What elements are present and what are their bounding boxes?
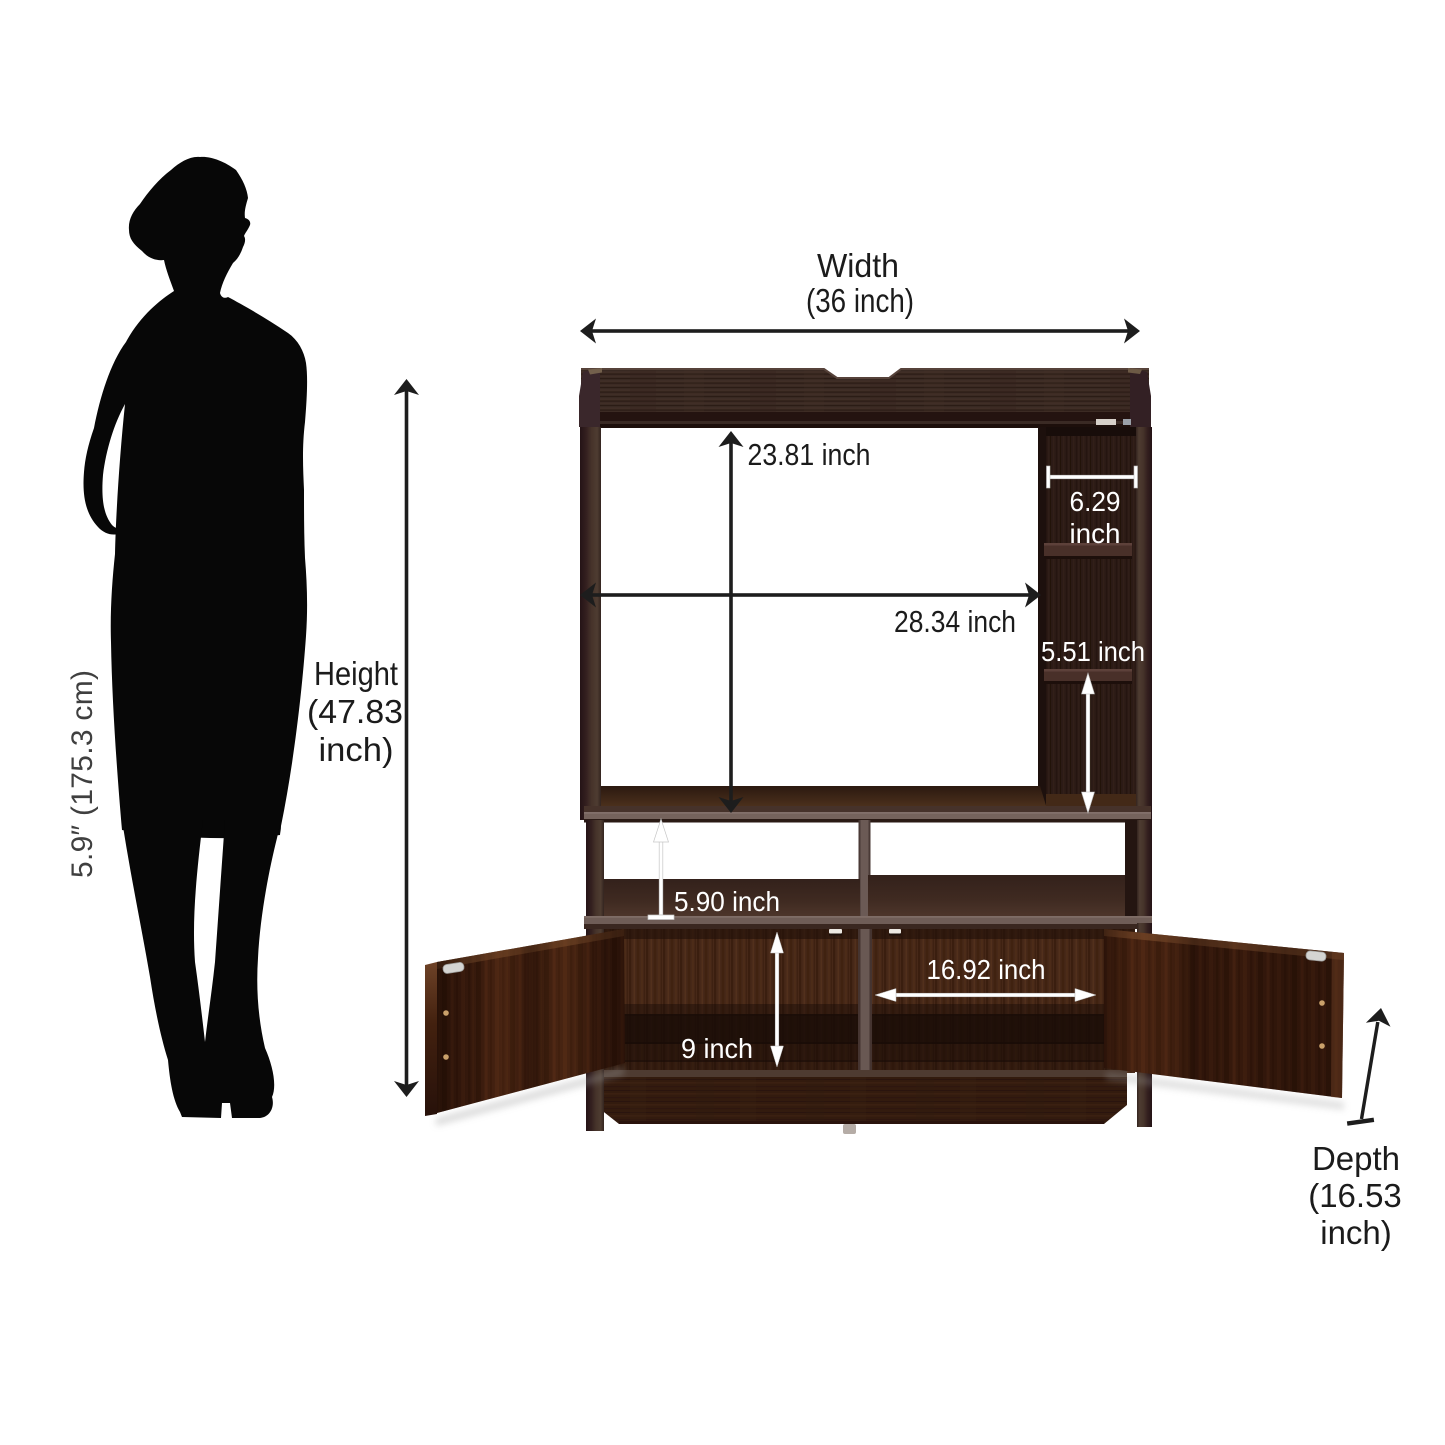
svg-text:Depth(16.53inch): Depth(16.53inch) [1308, 1140, 1402, 1251]
svg-text:23.81 inch: 23.81 inch [748, 437, 871, 472]
svg-text:Height(47.83inch): Height(47.83inch) [307, 655, 403, 768]
svg-text:6.29inch: 6.29inch [1070, 486, 1121, 549]
svg-text:9 inch: 9 inch [681, 1033, 753, 1064]
svg-text:28.34 inch: 28.34 inch [894, 604, 1016, 639]
svg-text:5.51 inch: 5.51 inch [1041, 636, 1145, 667]
svg-text:5.90 inch: 5.90 inch [674, 886, 780, 917]
svg-text:16.92 inch: 16.92 inch [927, 954, 1046, 985]
svg-text:Width(36 inch): Width(36 inch) [806, 247, 914, 319]
svg-text:5.9″ (175.3 cm): 5.9″ (175.3 cm) [66, 670, 99, 878]
